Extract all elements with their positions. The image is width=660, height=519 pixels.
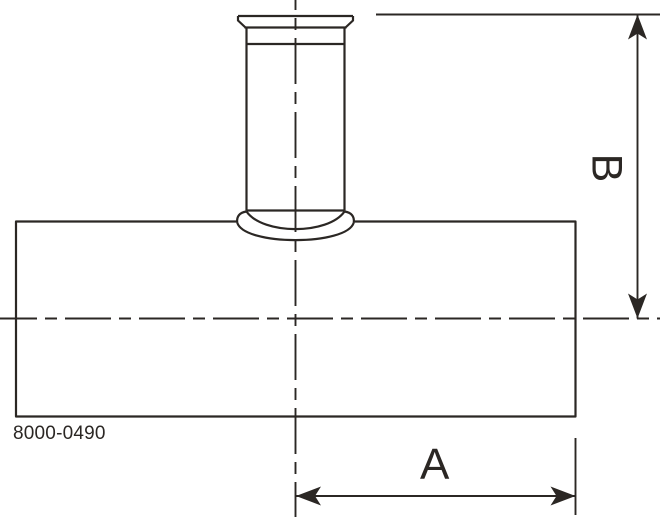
saddle-hook-left xyxy=(237,212,246,223)
ferrule-flange-left-edge xyxy=(238,16,246,28)
saddle-hook-right xyxy=(345,212,354,223)
dimension-b-label: B xyxy=(585,154,628,183)
dimension-a-label: A xyxy=(420,443,449,487)
part-number: 8000-0490 xyxy=(13,424,106,443)
ferrule-flange-right-edge xyxy=(346,16,354,28)
technical-drawing-tee-fitting: 8000-0490 A B xyxy=(0,0,660,519)
